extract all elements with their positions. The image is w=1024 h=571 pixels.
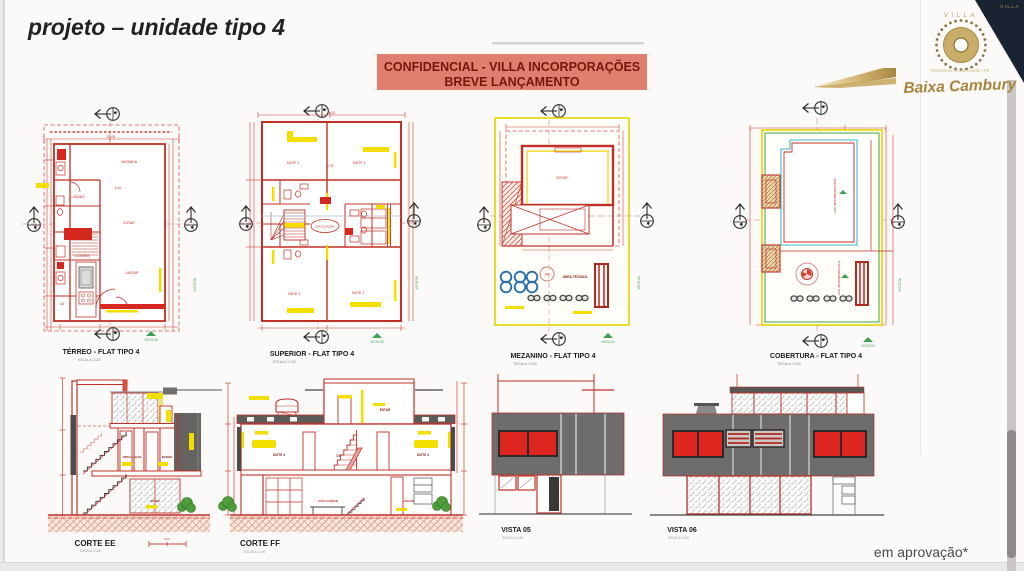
svg-text:SUÍTE 2: SUÍTE 2 bbox=[352, 291, 365, 295]
svg-text:VARANDA: VARANDA bbox=[121, 160, 138, 164]
svg-text:VISTA 06: VISTA 06 bbox=[898, 278, 902, 291]
svg-text:ESCALA 1:100: ESCALA 1:100 bbox=[273, 360, 296, 364]
svg-text:LAVABO: LAVABO bbox=[71, 195, 84, 199]
svg-text:ESCALA 1:100: ESCALA 1:100 bbox=[514, 362, 537, 366]
svg-text:COZ./JANTAR: COZ./JANTAR bbox=[318, 499, 339, 503]
svg-text:SUÍTE 2: SUÍTE 2 bbox=[417, 452, 429, 457]
svg-text:5,00: 5,00 bbox=[164, 537, 170, 541]
svg-text:SUÍTE 4: SUÍTE 4 bbox=[273, 452, 285, 457]
svg-text:SUÍTE 3: SUÍTE 3 bbox=[287, 161, 300, 165]
svg-text:VISTA 03: VISTA 03 bbox=[861, 344, 874, 348]
svg-text:6,10: 6,10 bbox=[115, 186, 122, 190]
svg-text:VILLA: VILLA bbox=[944, 13, 978, 19]
svg-text:CIRCULAÇÃO: CIRCULAÇÃO bbox=[123, 454, 143, 459]
svg-text:MEZANINO - FLAT TIPO 4: MEZANINO - FLAT TIPO 4 bbox=[510, 353, 595, 360]
svg-text:VISTA 06: VISTA 06 bbox=[637, 276, 641, 289]
svg-text:VISTA 06: VISTA 06 bbox=[415, 276, 419, 289]
svg-text:VILLA: VILLA bbox=[1000, 4, 1020, 9]
svg-text:BREVE LANÇAMENTO: BREVE LANÇAMENTO bbox=[444, 75, 579, 89]
svg-text:SUÍTE 1: SUÍTE 1 bbox=[353, 161, 366, 165]
svg-text:ESCALA 1:100: ESCALA 1:100 bbox=[80, 549, 101, 553]
svg-text:ESCALA 1:100: ESCALA 1:100 bbox=[668, 536, 689, 540]
svg-text:VISTA 06: VISTA 06 bbox=[193, 278, 197, 291]
svg-text:VISTA 05: VISTA 05 bbox=[370, 340, 383, 344]
svg-text:4,75: 4,75 bbox=[327, 164, 334, 168]
svg-text:ESTAR: ESTAR bbox=[380, 408, 391, 412]
svg-text:ESCALA 1:100: ESCALA 1:100 bbox=[502, 536, 523, 540]
svg-text:VISTA 05: VISTA 05 bbox=[501, 527, 531, 534]
svg-text:ESCALA 1:100: ESCALA 1:100 bbox=[78, 358, 101, 362]
svg-text:ESCALA 1:100: ESCALA 1:100 bbox=[778, 362, 801, 366]
svg-text:SUÍTE 4: SUÍTE 4 bbox=[288, 292, 301, 296]
svg-text:ESTAR: ESTAR bbox=[150, 499, 159, 503]
svg-text:VISTA 06: VISTA 06 bbox=[667, 527, 697, 534]
svg-text:CORTE EE: CORTE EE bbox=[75, 539, 117, 548]
svg-text:8,10: 8,10 bbox=[329, 111, 336, 115]
svg-text:15,00: 15,00 bbox=[107, 135, 116, 139]
svg-text:CIRCULAÇÃO: CIRCULAÇÃO bbox=[315, 224, 335, 229]
svg-text:ÁREA TÉCNICA: ÁREA TÉCNICA bbox=[563, 274, 588, 279]
svg-text:ESCALA 1:100: ESCALA 1:100 bbox=[244, 550, 265, 554]
svg-text:ESTAR: ESTAR bbox=[556, 176, 568, 180]
svg-text:SUPERIOR - FLAT TIPO 4: SUPERIOR - FLAT TIPO 4 bbox=[270, 351, 354, 358]
svg-text:CORTE FF: CORTE FF bbox=[240, 539, 280, 548]
svg-text:LAJE IMPERMEABILIZADA: LAJE IMPERMEABILIZADA bbox=[833, 178, 837, 213]
svg-text:CONFIDENCIAL - VILLA INCORPORA: CONFIDENCIAL - VILLA INCORPORAÇÕES bbox=[384, 59, 640, 74]
svg-text:COZINHA: COZINHA bbox=[74, 254, 90, 258]
svg-text:BANHO: BANHO bbox=[162, 455, 173, 459]
svg-text:VISTA 03: VISTA 03 bbox=[601, 340, 614, 344]
svg-text:TÉRREO - FLAT TIPO 4: TÉRREO - FLAT TIPO 4 bbox=[63, 347, 140, 356]
svg-text:COBERTURA - FLAT TIPO 4: COBERTURA - FLAT TIPO 4 bbox=[770, 353, 862, 360]
svg-text:projeto – unidade tipo 4: projeto – unidade tipo 4 bbox=[27, 14, 285, 40]
svg-text:ESTAR: ESTAR bbox=[123, 221, 135, 225]
svg-text:em aprovação*: em aprovação* bbox=[874, 544, 969, 560]
svg-text:JANTAR: JANTAR bbox=[126, 271, 139, 275]
svg-text:VISTA 05: VISTA 05 bbox=[144, 338, 157, 342]
svg-text:OK: OK bbox=[544, 273, 550, 277]
svg-text:AS: AS bbox=[60, 302, 65, 306]
svg-text:LAJE IMPERMEABILIZADA: LAJE IMPERMEABILIZADA bbox=[837, 260, 841, 295]
svg-text:Residencial de alto padrão • P: Residencial de alto padrão • Pé bbox=[931, 68, 990, 73]
